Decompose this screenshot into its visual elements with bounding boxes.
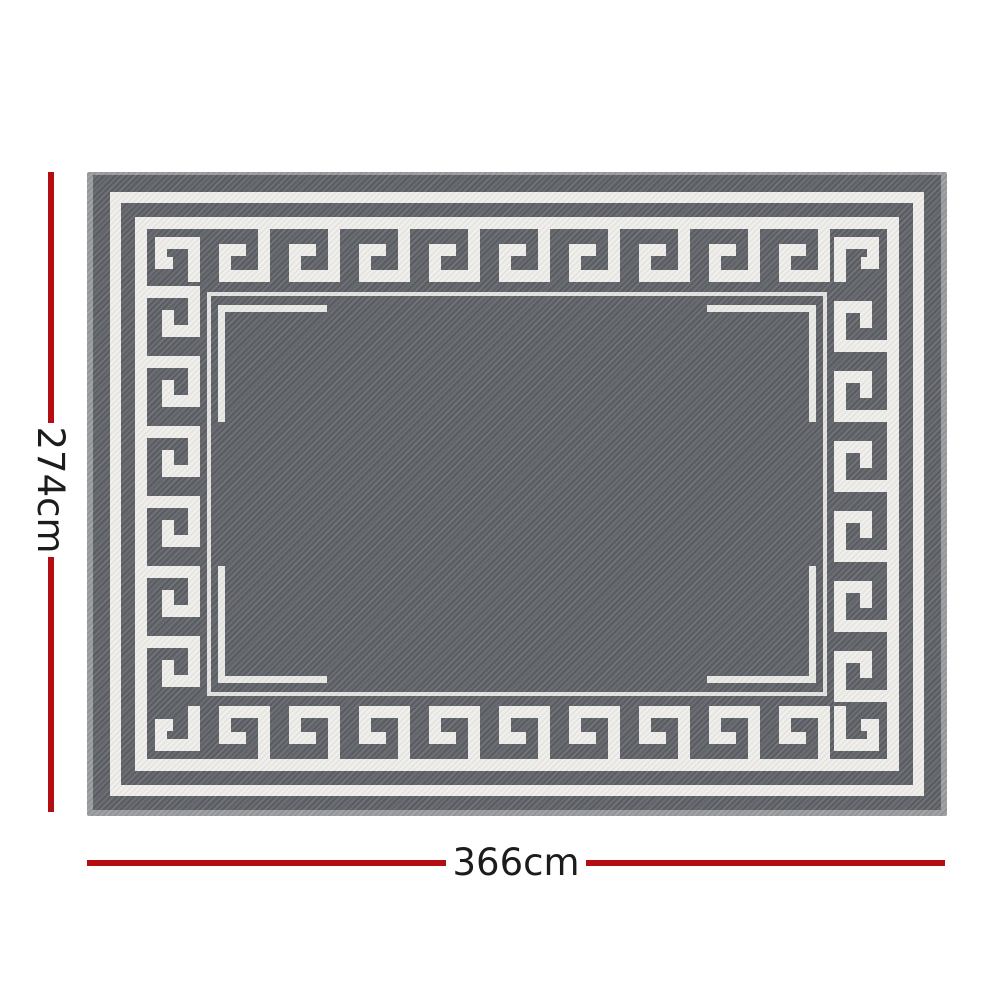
height-dimension-label: 274cm [30,425,70,555]
rug-image [87,172,947,816]
rug-svg [87,172,947,816]
greek-key-band-right [834,282,899,706]
width-dimension-line-right [586,860,945,866]
greek-key-band-top [200,217,834,282]
greek-key-band-bottom [200,706,834,771]
width-dimension-line-left [87,860,446,866]
product-dimension-diagram: 274cm 366cm [0,0,1000,1000]
height-dimension-line-lower [48,557,54,812]
width-dimension-label: 366cm [446,843,586,883]
height-dimension-line-upper [48,172,54,423]
greek-key-band-left [135,282,200,706]
